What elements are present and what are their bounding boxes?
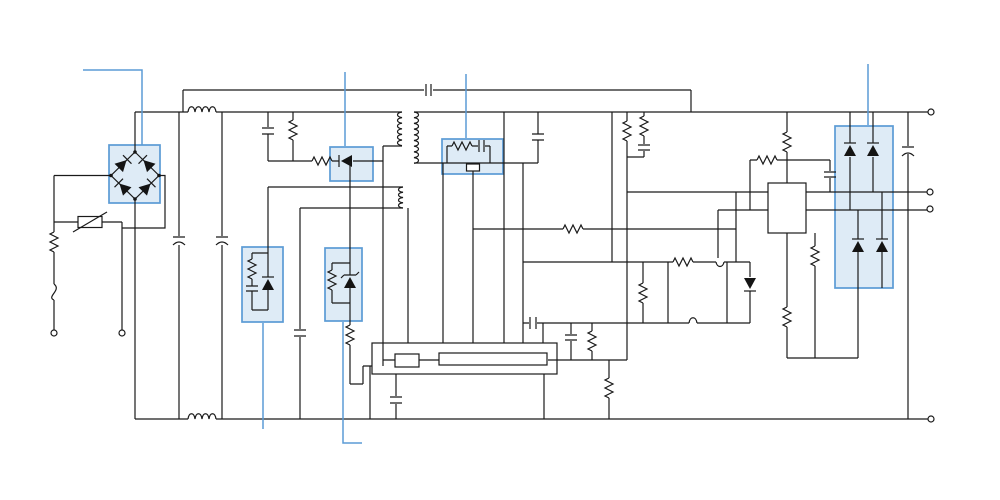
callout-lines — [83, 64, 868, 443]
feedback-resistor — [563, 225, 583, 233]
highlight-zener-network-2[interactable] — [325, 248, 362, 321]
fuse — [52, 284, 57, 300]
secondary-winding — [414, 112, 419, 163]
base-resistor — [673, 258, 693, 266]
vcc-resistor — [588, 331, 596, 351]
clamp-resistor — [312, 157, 332, 165]
divider-resistor-2 — [640, 116, 648, 136]
divider-resistor-1 — [623, 121, 631, 141]
output-terminal-2 — [927, 189, 933, 195]
highlight-output-rectifier[interactable] — [835, 126, 893, 288]
feedback-wiring — [473, 112, 750, 360]
output-terminal-3 — [927, 206, 933, 212]
limit-resistor — [639, 283, 647, 303]
controller-block-small — [395, 354, 419, 367]
pullup-resistor — [783, 132, 791, 152]
aux-winding — [399, 187, 404, 208]
schematic-canvas — [0, 0, 1000, 500]
schematic-page — [0, 0, 1000, 500]
lower-feedback-resistor — [783, 307, 791, 327]
led-resistor — [757, 156, 777, 164]
current-limit-diode — [744, 278, 756, 291]
ac-terminal-live — [51, 330, 57, 336]
controller-wiring — [390, 323, 627, 419]
sense-resistor — [605, 378, 613, 398]
controller-block-long — [439, 353, 547, 365]
primary-winding — [398, 112, 403, 146]
callout-bridge-rectifier — [83, 70, 142, 145]
current-limit-transistor-2 — [689, 318, 697, 323]
schematic — [50, 64, 934, 443]
feedback-network — [473, 112, 756, 360]
output-terminal-1 — [928, 109, 934, 115]
optocoupler-ic[interactable] — [768, 183, 806, 233]
bleeder-resistor — [289, 120, 297, 140]
winding-leads — [268, 163, 538, 419]
zener2-lower-resistor — [346, 325, 354, 345]
controller-ic[interactable] — [372, 323, 627, 419]
ac-terminal-neutral — [119, 330, 125, 336]
choke-top-inductor — [188, 107, 216, 112]
bias-resistor — [811, 246, 819, 266]
current-limit-transistor-1 — [716, 262, 724, 267]
output-terminal-4 — [928, 416, 934, 422]
choke-bottom-inductor — [188, 414, 216, 419]
highlight-zener-network-1[interactable] — [242, 247, 283, 322]
controller-outline — [372, 343, 557, 374]
mosfet-switch[interactable] — [467, 164, 480, 171]
inrush-resistor — [50, 232, 58, 252]
